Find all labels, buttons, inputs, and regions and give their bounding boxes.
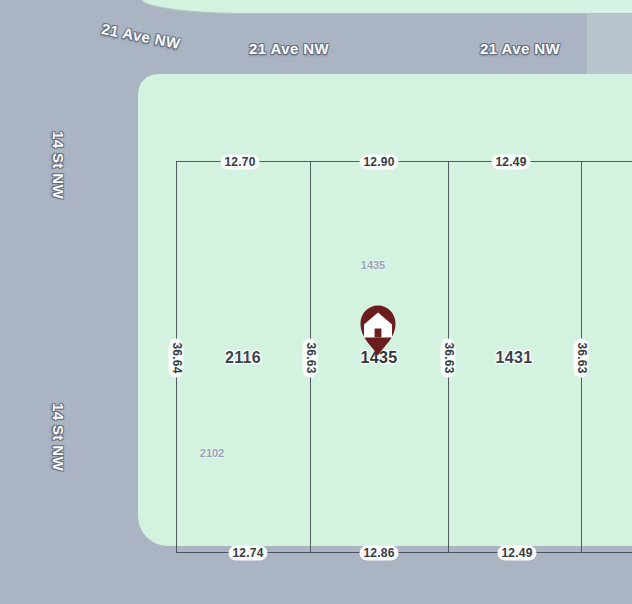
dimension-side-4: 36.63 xyxy=(574,338,589,377)
dimension-side-2: 36.63 xyxy=(303,338,318,377)
dimension-side-1: 36.64 xyxy=(169,338,184,377)
dimension-bottom-3: 12.49 xyxy=(497,546,536,561)
dimension-side-3: 36.63 xyxy=(441,338,456,377)
dimension-top-1: 12.70 xyxy=(220,155,259,170)
street-label-21-ave-nw-mid: 21 Ave NW xyxy=(249,40,329,57)
small-address-center: 1435 xyxy=(361,259,385,271)
street-label-14-st-nw-upper: 14 St NW xyxy=(50,131,67,199)
dimension-top-3: 12.49 xyxy=(491,155,530,170)
dimension-bottom-1: 12.74 xyxy=(228,546,267,561)
house-pin-icon xyxy=(358,303,398,357)
block-north-of-avenue xyxy=(142,0,632,14)
alley-opening xyxy=(587,14,632,75)
street-label-21-ave-nw-west: 21 Ave NW xyxy=(100,20,182,52)
dimension-bottom-2: 12.86 xyxy=(359,546,398,561)
street-label-14-st-nw-lower: 14 St NW xyxy=(50,403,67,471)
map-canvas[interactable]: 12.70 12.90 12.49 12.74 12.86 12.49 36.6… xyxy=(0,0,632,604)
dimension-top-2: 12.90 xyxy=(359,155,398,170)
lot-label-left: 2116 xyxy=(225,349,261,367)
street-label-21-ave-nw-right: 21 Ave NW xyxy=(480,40,560,57)
lot-label-right: 1431 xyxy=(496,349,533,367)
property-pin[interactable] xyxy=(358,303,398,357)
small-address-left: 2102 xyxy=(200,447,224,459)
